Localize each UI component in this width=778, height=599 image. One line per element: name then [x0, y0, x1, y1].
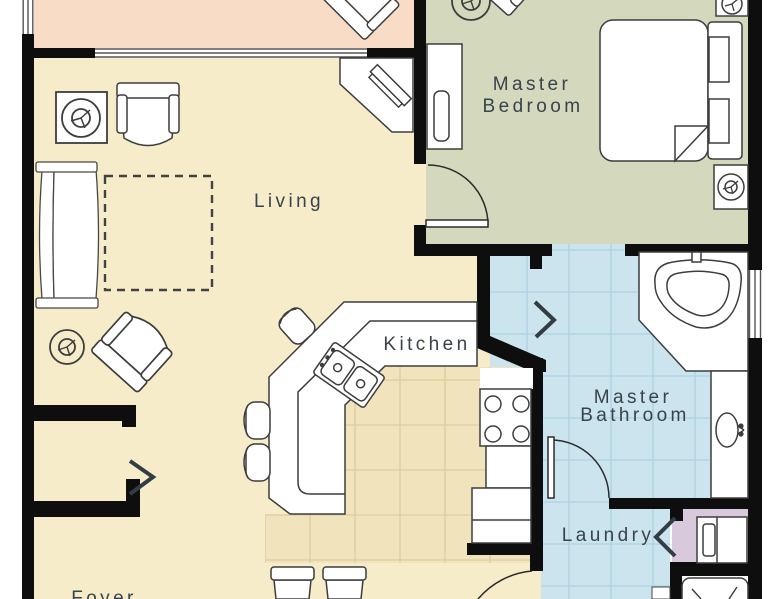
svg-text:Laundry: Laundry: [562, 525, 654, 546]
svg-text:Bathroom: Bathroom: [580, 405, 690, 426]
svg-text:Foyer: Foyer: [71, 588, 137, 599]
svg-text:Bedroom: Bedroom: [483, 96, 584, 117]
svg-text:Master: Master: [493, 74, 571, 95]
svg-text:Living: Living: [254, 191, 324, 212]
svg-text:Kitchen: Kitchen: [383, 334, 470, 355]
